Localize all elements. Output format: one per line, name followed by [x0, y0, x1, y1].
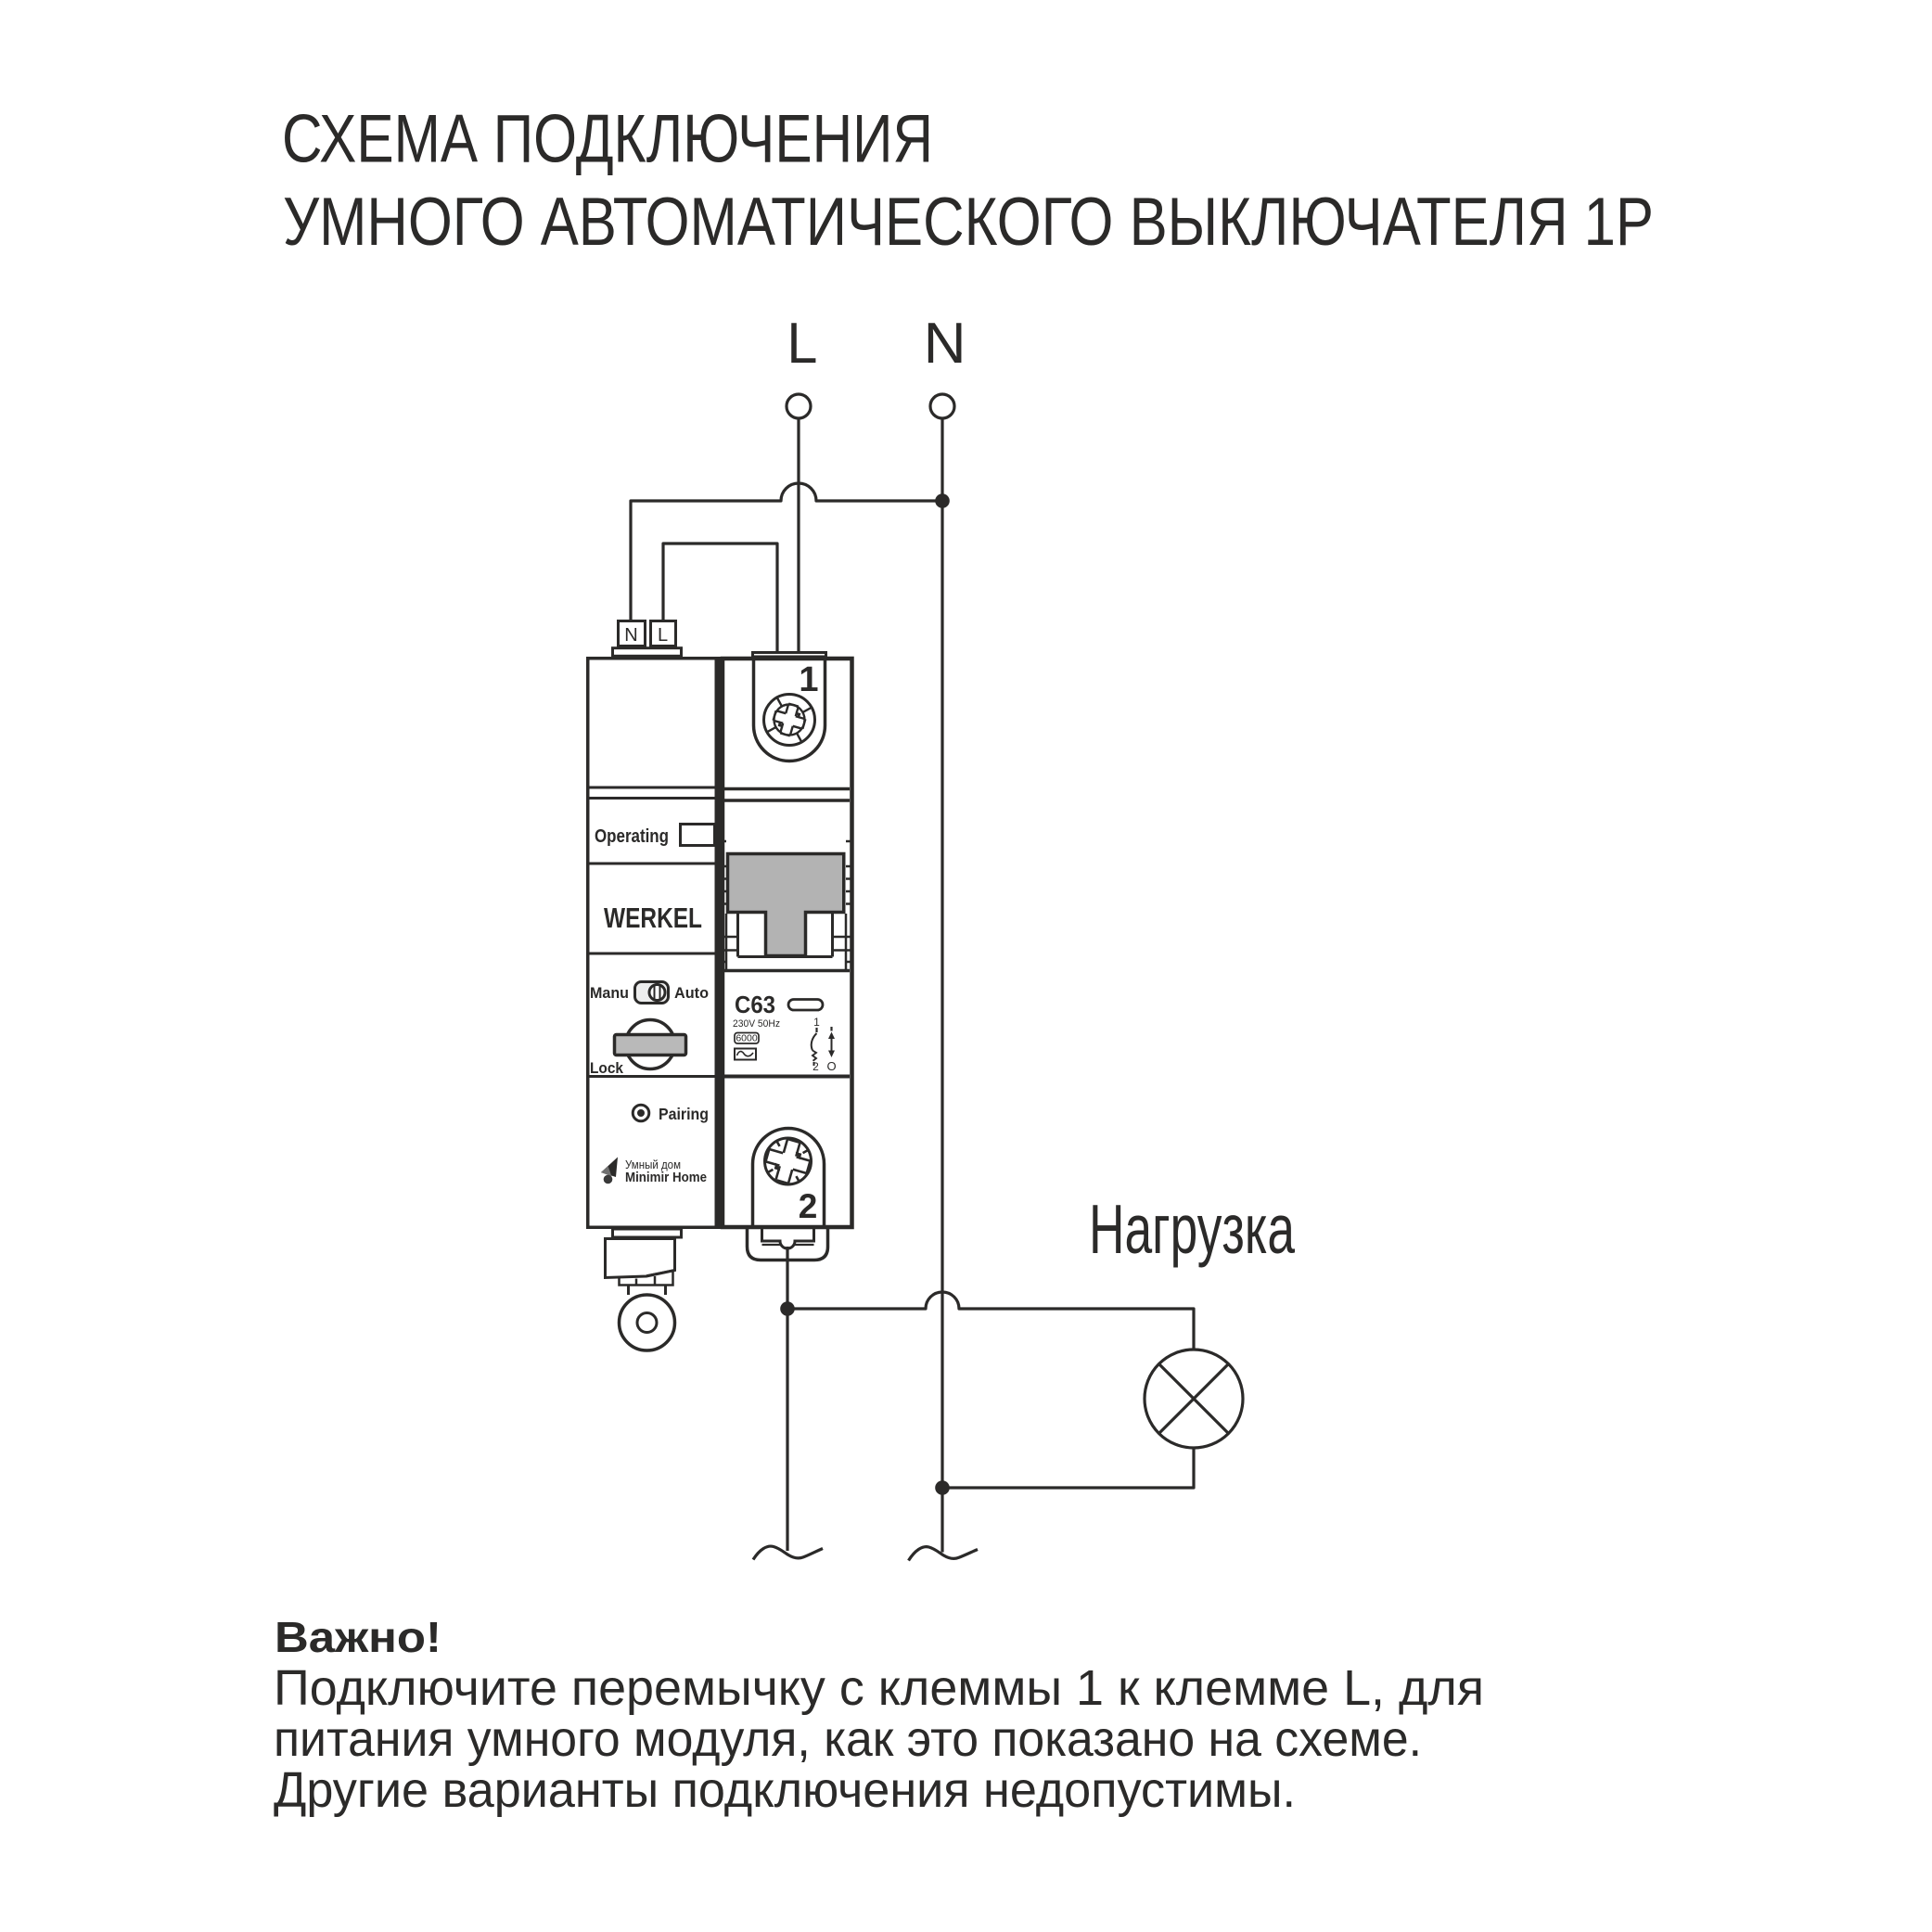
- svg-text:Manu: Manu: [590, 985, 629, 1002]
- svg-text:Важно!: Важно!: [275, 1613, 441, 1661]
- svg-text:1: 1: [799, 660, 818, 699]
- svg-text:Lock: Lock: [590, 1060, 624, 1077]
- svg-text:Minimir Home: Minimir Home: [625, 1170, 707, 1185]
- svg-text:N: N: [624, 625, 637, 646]
- svg-text:питания умного модуля, как это: питания умного модуля, как это показано …: [274, 1711, 1422, 1767]
- svg-text:СХЕМА ПОДКЛЮЧЕНИЯ: СХЕМА ПОДКЛЮЧЕНИЯ: [282, 102, 933, 177]
- svg-text:1: 1: [813, 1016, 820, 1029]
- svg-text:Подключите перемычку с клеммы: Подключите перемычку с клеммы 1 к клемме…: [274, 1660, 1484, 1716]
- svg-text:N: N: [924, 312, 966, 376]
- svg-text:L: L: [787, 312, 817, 376]
- svg-text:Другие варианты подключения не: Другие варианты подключения недопустимы.: [274, 1762, 1296, 1818]
- svg-text:6000: 6000: [736, 1033, 758, 1044]
- svg-text:O: O: [826, 1059, 836, 1073]
- svg-text:Pairing: Pairing: [659, 1105, 709, 1123]
- svg-text:C63: C63: [735, 991, 775, 1018]
- svg-text:Operating: Operating: [595, 826, 669, 847]
- svg-text:230V 50Hz: 230V 50Hz: [733, 1018, 780, 1030]
- svg-text:2: 2: [812, 1060, 819, 1073]
- svg-text:Нагрузка: Нагрузка: [1089, 1190, 1295, 1268]
- svg-text:WERKEL: WERKEL: [604, 902, 702, 934]
- svg-text:L: L: [658, 625, 668, 646]
- svg-text:УМНОГО АВТОМАТИЧЕСКОГО ВЫКЛЮЧА: УМНОГО АВТОМАТИЧЕСКОГО ВЫКЛЮЧАТЕЛЯ 1Р: [283, 185, 1654, 260]
- svg-text:Auto: Auto: [674, 985, 709, 1002]
- svg-text:2: 2: [799, 1187, 818, 1225]
